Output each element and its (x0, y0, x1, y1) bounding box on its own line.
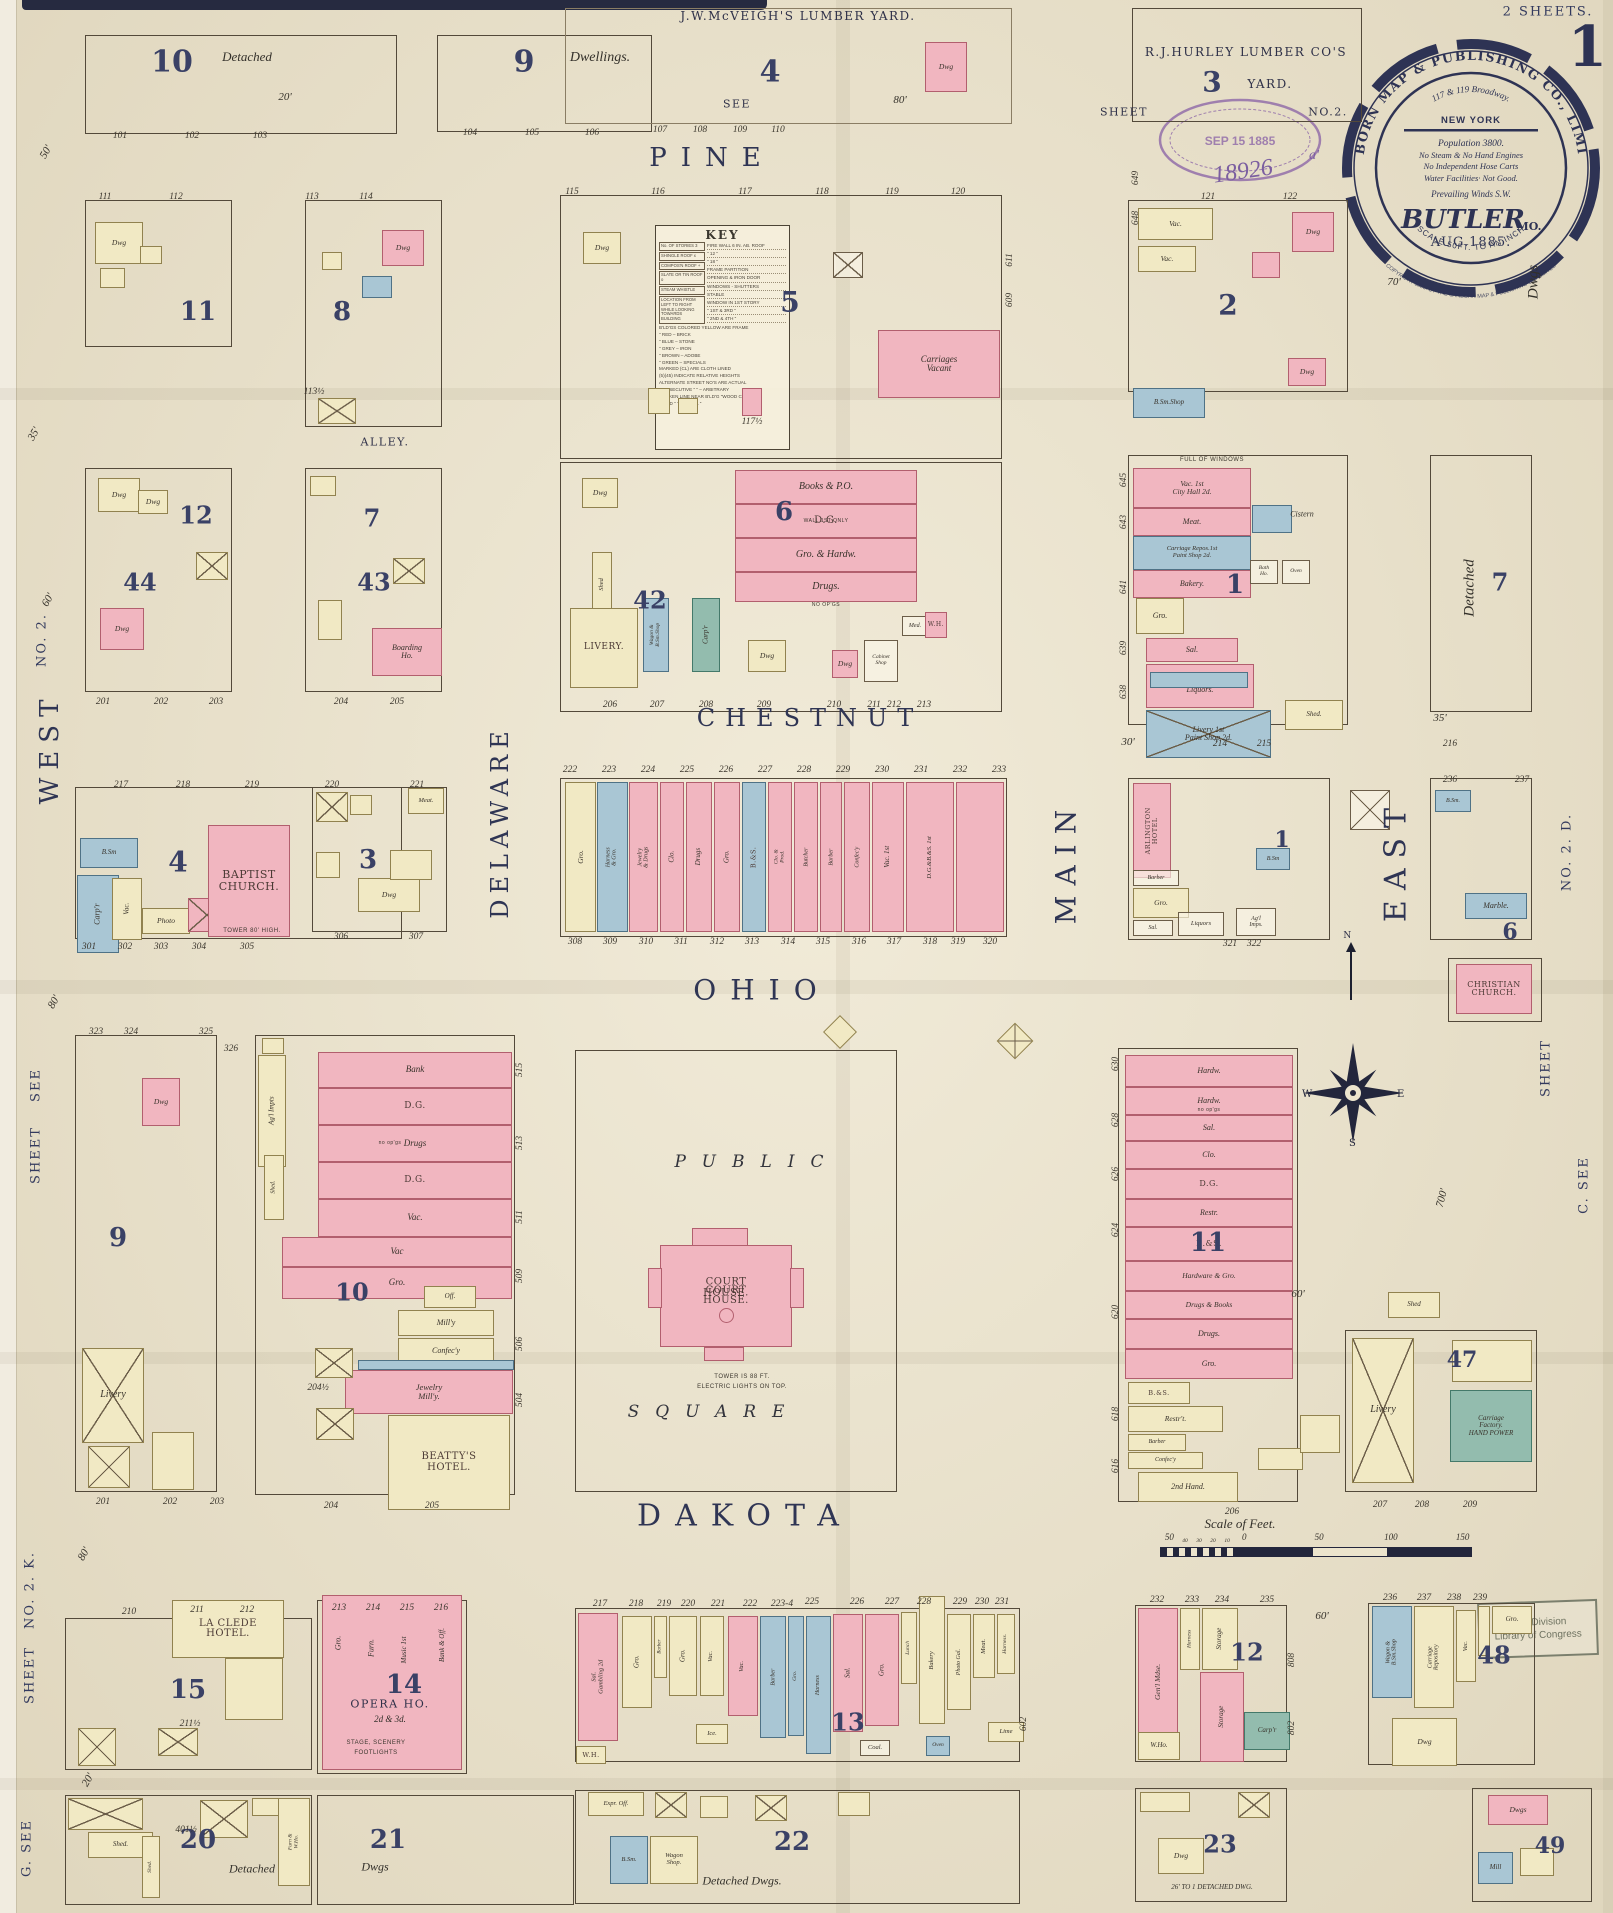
building: Livery (82, 1348, 144, 1443)
building-label: Liquors (1191, 921, 1211, 928)
block-number: 2 (1218, 289, 1237, 322)
building: W.H. (925, 612, 947, 638)
lot-number: 106 (585, 128, 599, 138)
building: Confec'y (844, 782, 870, 932)
lot-number: 616 (1111, 1459, 1121, 1473)
building-label: Bank (406, 1065, 425, 1074)
compass-s: S (1349, 1138, 1356, 1148)
building-label: Harness (1187, 1630, 1193, 1648)
building: Carp'r (1244, 1712, 1290, 1750)
building-label: Mill (1490, 1864, 1502, 1871)
building-label: Dwg (1300, 368, 1314, 376)
building-label: Bakery. (1180, 580, 1204, 588)
building-label: Dwg (593, 489, 607, 497)
building: Vac. (112, 878, 142, 940)
lot-number: 639 (1119, 641, 1129, 655)
lot-number: 648 (1131, 211, 1141, 225)
lot-number: 628 (1111, 1113, 1121, 1127)
building-label: CarriageRepository (1428, 1644, 1441, 1670)
building-label: Dwg (1174, 1852, 1188, 1860)
lot-number: 220 (681, 1599, 695, 1609)
building: Shed (1388, 1292, 1440, 1318)
lot-number: 311 (674, 937, 688, 947)
building: Dwg (98, 478, 140, 512)
building-label: Drugs. (812, 582, 840, 593)
lot-number: 808 (1287, 1653, 1297, 1667)
building: Sal.Gambling 2d (578, 1613, 618, 1741)
building: Dwg (748, 640, 786, 672)
lot-number: 238 (1447, 1593, 1461, 1603)
building (310, 476, 336, 496)
building-label: D.G. (404, 1176, 426, 1185)
building-label: W.Ho. (1150, 1742, 1167, 1749)
scan-edge-left (0, 0, 17, 1913)
lot-number: 602 (1019, 1717, 1029, 1731)
building-label: Gro. (1202, 1360, 1217, 1368)
building-label: Photo (157, 917, 175, 925)
building: Harness (806, 1616, 831, 1754)
lot-number: 649 (1131, 171, 1141, 185)
lot-number: 237 (1515, 775, 1529, 785)
annotation: SEE (723, 98, 751, 111)
block-outline (560, 195, 1002, 459)
scale-ruler (1160, 1547, 1472, 1557)
lot-number: 110 (771, 125, 785, 135)
building: W.H. (576, 1746, 606, 1764)
building: Dwg (382, 230, 424, 266)
building-label: Vac. (709, 1650, 716, 1661)
building-label: B.Sm (102, 849, 117, 856)
building: Restr't. (1128, 1406, 1223, 1432)
lot-number: 205 (390, 697, 404, 707)
lot-number: 312 (710, 937, 724, 947)
building-label: Barber (828, 848, 834, 865)
lot-number: 210 (827, 700, 841, 710)
building: Meat. (973, 1614, 995, 1678)
lot-number: 226 (719, 765, 733, 775)
building-label: LA CLEDEHOTEL. (199, 1619, 257, 1640)
lot-number: 221 (410, 780, 424, 790)
building-label: Books & P.O. (799, 482, 853, 493)
building: Sal. (1133, 920, 1173, 936)
building: Vac. (1138, 246, 1196, 272)
lot-number: 221 (711, 1599, 725, 1609)
street-label: DELAWARE (486, 725, 514, 918)
building (1252, 252, 1280, 278)
building-label: BEATTY'SHOTEL. (421, 1452, 476, 1473)
lot-number: 227 (885, 1597, 899, 1607)
lot-number: 325 (199, 1027, 213, 1037)
annotation: Bank & Off. (438, 1628, 446, 1662)
lot-number: 316 (852, 937, 866, 947)
building-label: Sal. (1148, 925, 1157, 931)
margin-label: SEE (29, 1068, 44, 1102)
block-number: 7 (1492, 568, 1509, 597)
lot-number: 223-4 (771, 1599, 793, 1609)
lot-number: 201 (96, 697, 110, 707)
building: Hardware & Gro. (1125, 1261, 1293, 1291)
annotation: WALL 1ST ONLY (804, 518, 849, 524)
building (838, 1792, 870, 1816)
building (318, 600, 342, 640)
building: Drugs. (735, 572, 917, 602)
building: Livery 1stPaint Shop 2d. (1146, 710, 1271, 758)
margin-label: Dwgs (1526, 265, 1543, 299)
margin-label: C. SEE (1577, 1156, 1592, 1214)
building: Bakery (919, 1596, 945, 1724)
building: D.G.&B.&S. 1st (906, 782, 954, 932)
building-label: Clo. (668, 851, 675, 863)
svg-text:117 & 119 Broadway.: 117 & 119 Broadway. (1430, 84, 1512, 104)
building: Barber (654, 1616, 667, 1678)
building-label: Sal. (844, 1668, 851, 1679)
building-label: Confec'y (1155, 1457, 1176, 1463)
lot-number: 209 (757, 700, 771, 710)
scale-number: 100 (1384, 1532, 1398, 1542)
lot-number: 236 (1383, 1593, 1397, 1603)
lot-number: 217 (593, 1599, 607, 1609)
margin-label: G. SEE (20, 1819, 35, 1877)
scale-number: 0 (1242, 1532, 1247, 1542)
block-number: 49 (1535, 1833, 1566, 1859)
building-label: Lunch (906, 1641, 912, 1655)
street-label: MAIN (1050, 800, 1083, 924)
lot-number: 101 (113, 131, 127, 141)
lot-number: 109 (733, 125, 747, 135)
building-label: Meat. (419, 798, 434, 805)
building: Expr. Off. (588, 1792, 644, 1816)
building-label: Dwg (146, 498, 160, 506)
building: LA CLEDEHOTEL. (172, 1600, 284, 1658)
building (655, 1792, 687, 1818)
building-label: Storage (1216, 1628, 1223, 1650)
lot-number: 302 (118, 942, 132, 952)
lot-number: 314 (781, 937, 795, 947)
building: Vac. (1456, 1610, 1476, 1682)
lot-number: 308 (568, 937, 582, 947)
building (823, 1015, 857, 1049)
lot-number: 233 (992, 765, 1006, 775)
lot-number: 116 (651, 187, 665, 197)
building (393, 558, 425, 584)
block-number: 4 (760, 55, 781, 90)
lot-number: 115 (565, 187, 579, 197)
block-number: 6 (1502, 919, 1517, 945)
stamp-population: Population 3800. (1437, 139, 1504, 149)
lot-number: 230 (875, 765, 889, 775)
building-label: B.Sm (1267, 856, 1280, 862)
building-label: Storage (1218, 1706, 1225, 1728)
building-label: Shed. (271, 1181, 277, 1194)
building-label: Expr. Off. (603, 1801, 628, 1808)
lot-number: 228 (917, 1597, 931, 1607)
building (1150, 672, 1248, 688)
building: ARLINGTONHOTEL (1133, 783, 1171, 878)
building-label: Gen'l Mdse. (1154, 1664, 1162, 1700)
building (196, 552, 228, 580)
lot-number: 643 (1119, 515, 1129, 529)
building: Drugs (686, 782, 712, 932)
lot-number: 117½ (742, 417, 763, 427)
annotation: NO.2. (1308, 106, 1348, 119)
building-label: Restr't. (1165, 1415, 1186, 1423)
building: Meat. (408, 788, 444, 814)
building: Vac. (728, 1616, 758, 1716)
building: Clo. (1125, 1141, 1293, 1169)
block-number: 22 (774, 1827, 810, 1857)
building: Drugs (318, 1125, 512, 1162)
lot-number: 208 (699, 700, 713, 710)
building-label: Gro. (1506, 1616, 1519, 1623)
lot-number: 319 (951, 937, 965, 947)
lot-number: 237 (1417, 1593, 1431, 1603)
scale-sub-number: 20 (1210, 1538, 1216, 1544)
north-arrow (1346, 942, 1356, 1002)
lot-number: 205 (425, 1501, 439, 1511)
building (100, 268, 125, 288)
street-label: OHIO (693, 974, 830, 1007)
building-label: Hardw. (1197, 1067, 1220, 1075)
building: B.&S. (742, 782, 766, 932)
building-label: Wagon &B.Sm.Shop (650, 623, 662, 647)
dimension-label: 20' (278, 91, 291, 103)
dimension-label: 35' (25, 425, 42, 443)
lot-number: 201 (96, 1497, 110, 1507)
block-outline (1430, 455, 1532, 712)
lot-number: 225 (680, 765, 694, 775)
building-label: Wagon &B.Sm.Shop (1386, 1639, 1399, 1665)
building-label: Dwgs (1509, 1806, 1526, 1814)
building: Drugs. (1125, 1319, 1293, 1349)
lot-number: 315 (816, 937, 830, 947)
annotation: Detached Dwgs. (702, 1874, 781, 1889)
lot-number: 509 (515, 1269, 525, 1283)
building-label: Vac (391, 1247, 404, 1256)
lot-number: 203 (209, 697, 223, 707)
building-label: CarriageFactory.HAND POWER (1469, 1415, 1514, 1437)
building-label: Vac. 1stCity Hall 2d. (1173, 480, 1212, 496)
building-label: Sal.Gambling 2d (591, 1660, 605, 1694)
lot-number: 322 (1247, 939, 1261, 949)
scale-number: 50 (1165, 1532, 1174, 1542)
building-label: JewelryMill'y. (416, 1383, 442, 1401)
building: Confec'y (1128, 1452, 1203, 1469)
building-label: Dwg (1306, 228, 1320, 236)
building (742, 388, 762, 416)
building: Vac. (318, 1199, 512, 1237)
building (78, 1728, 116, 1766)
building: Gro. (282, 1267, 512, 1299)
building-label: B.Sm. (621, 1857, 636, 1864)
building-label: Dwg (595, 244, 609, 252)
building: Bank (318, 1052, 512, 1088)
building: Shed (592, 552, 612, 616)
block-number: 44 (123, 568, 156, 597)
dimension-label: 80' (893, 94, 906, 106)
building (140, 246, 162, 264)
building: BathHo. (1250, 560, 1278, 584)
building-label: Harness. (1003, 1634, 1009, 1654)
building: Photo (142, 908, 190, 934)
block-number: 5 (780, 286, 799, 319)
building-label: Gro. (577, 850, 585, 864)
building: Sal. (1125, 1115, 1293, 1141)
building: Drugs & Books (1125, 1291, 1293, 1319)
building (318, 398, 356, 424)
building: Vac. 1st (872, 782, 904, 932)
lot-number: 216 (1443, 739, 1457, 749)
block-number: 9 (514, 45, 535, 80)
lot-number: 220 (325, 780, 339, 790)
building: Mill (1478, 1852, 1513, 1884)
building-label: W.H. (582, 1752, 599, 1759)
lot-number: 232 (953, 765, 967, 775)
lot-number: 118 (815, 187, 829, 197)
building-label: Vac. (1463, 1641, 1469, 1651)
sanborn-stamp: SANBORN MAP & PUBLISHING CO., LIMITED 11… (1336, 30, 1606, 300)
annotation: TOWER IS 88 FT. (714, 1374, 769, 1380)
lot-number: 103 (253, 131, 267, 141)
building: Ice. (696, 1724, 728, 1744)
block-number: 1 (1226, 570, 1244, 600)
lot-number: 620 (1111, 1305, 1121, 1319)
building-label: Hardw. (1197, 1097, 1220, 1105)
lot-number: 224 (641, 765, 655, 775)
lot-number: 305 (240, 942, 254, 952)
building (704, 1347, 744, 1361)
annotation: ALLEY. (361, 436, 410, 449)
building-label: Carriage Repos.1stPaint Shop 2d. (1167, 546, 1218, 560)
scale-number: 150 (1456, 1532, 1470, 1542)
building-label: Dwg (1417, 1738, 1431, 1746)
lot-number: 304 (192, 942, 206, 952)
lot-number: 209 (1463, 1500, 1477, 1510)
building-label: D.G. (1199, 1180, 1218, 1188)
block-number: 43 (357, 568, 390, 597)
lot-number: 317 (887, 937, 901, 947)
lot-number: 202 (154, 697, 168, 707)
margin-label: NO. 2. (35, 613, 50, 667)
building-label: Drugs & Books (1186, 1301, 1233, 1309)
lot-number: 113 (305, 192, 319, 202)
margin-label: 2 SHEETS. (1503, 5, 1594, 20)
lot-number: 108 (693, 125, 707, 135)
lot-number: 618 (1111, 1407, 1121, 1421)
annotation: STAGE, SCENERY (346, 1740, 405, 1746)
annotation: no op'gs (379, 1140, 402, 1146)
building-label: Dwg (112, 491, 126, 499)
block-number: 3 (1202, 66, 1221, 99)
building-label: Ag'l Impts (268, 1097, 275, 1126)
street-label: DAKOTA (637, 1499, 853, 1534)
building-label: WagonShop. (665, 1853, 683, 1867)
compass-rose: W E S (1298, 1038, 1408, 1148)
stamp-address: 117 & 119 Broadway. (1430, 84, 1512, 104)
lot-number: 301 (82, 942, 96, 952)
building-label: Vac. 1st (884, 846, 891, 868)
building-label: Vac. (1161, 255, 1174, 263)
scale-bar: 5005010015040302010 (1160, 1532, 1472, 1566)
building: Hardw. (1125, 1055, 1293, 1087)
lot-number: 229 (836, 765, 850, 775)
annotation: Cistern (1290, 510, 1314, 519)
building-label: Barber (1148, 875, 1165, 881)
building-label: Barber (1149, 1439, 1166, 1445)
building: Furn &W.Ho. (278, 1798, 310, 1886)
building: Ag'l Impts (258, 1055, 286, 1167)
building-label: B.Sm. (1446, 798, 1460, 804)
building: Dwg (1288, 358, 1326, 386)
lot-number: 630 (1111, 1057, 1121, 1071)
lot-number: 213 (917, 700, 931, 710)
stamp-water: Water Facilities· Not Good. (1424, 173, 1518, 183)
margin-label: NO. 2. D. (1560, 813, 1575, 891)
building: BAPTISTCHURCH. (208, 825, 290, 937)
building (322, 252, 342, 270)
building: Barber (760, 1616, 786, 1738)
annotation: YARD. (1247, 77, 1292, 91)
building-label: Drugs. (1198, 1330, 1220, 1338)
building: Butcher (794, 782, 818, 932)
lot-number: 105 (525, 128, 539, 138)
lot-number: 122 (1283, 192, 1297, 202)
building: D.G. (318, 1162, 512, 1199)
building: CarriagesVacant (878, 330, 1000, 398)
building: WagonShop. (650, 1836, 698, 1884)
building: W.Ho. (1138, 1732, 1180, 1760)
lot-number: 117 (738, 187, 752, 197)
annotation: Furn. (367, 1639, 376, 1657)
dimension-label: 30' (1121, 736, 1134, 748)
block-number: 15 (170, 1675, 206, 1705)
lot-number: 204 (334, 697, 348, 707)
lot-number: 513 (515, 1136, 525, 1150)
building: Harness& Gro. (597, 782, 628, 932)
scale-numbers: 5005010015040302010 (1160, 1532, 1472, 1544)
annotation: TOWER 80' HIGH. (223, 928, 281, 934)
lot-number: 211 (867, 700, 881, 710)
building-label: Dwg (115, 625, 129, 633)
building-label: Shed. (148, 1861, 154, 1873)
building (316, 792, 348, 822)
lot-number: 504 (515, 1393, 525, 1407)
building-label: Butcher (803, 847, 809, 866)
lot-number: 218 (176, 780, 190, 790)
lot-number: 120 (951, 187, 965, 197)
building-label: W.H. (928, 622, 944, 628)
compass-e: E (1397, 1089, 1404, 1100)
building (790, 1268, 804, 1308)
lot-number: 112 (169, 192, 183, 202)
stamp-engines: No Steam & No Hand Engines (1418, 150, 1524, 160)
building: 2nd Hand. (1138, 1472, 1238, 1502)
building-label: Gro. (679, 1650, 686, 1663)
lot-number: 624 (1111, 1223, 1121, 1237)
lot-number: 206 (603, 700, 617, 710)
building-label: B.Sm.Shop (1154, 399, 1184, 406)
annotation: Music 1st (400, 1636, 408, 1663)
annotation: Scale of Feet. (1204, 1516, 1275, 1532)
building: Gro. (1492, 1606, 1532, 1634)
stamp-hose: No Independent Hose Carts (1423, 161, 1519, 171)
building-label: Oven (932, 1743, 944, 1749)
building (316, 852, 340, 878)
lot-number: 226 (850, 1597, 864, 1607)
annotation: no op'gs (1198, 1107, 1221, 1113)
lot-number: 213 (332, 1603, 346, 1613)
building-label: Dwg (396, 244, 410, 252)
building (719, 1308, 734, 1323)
